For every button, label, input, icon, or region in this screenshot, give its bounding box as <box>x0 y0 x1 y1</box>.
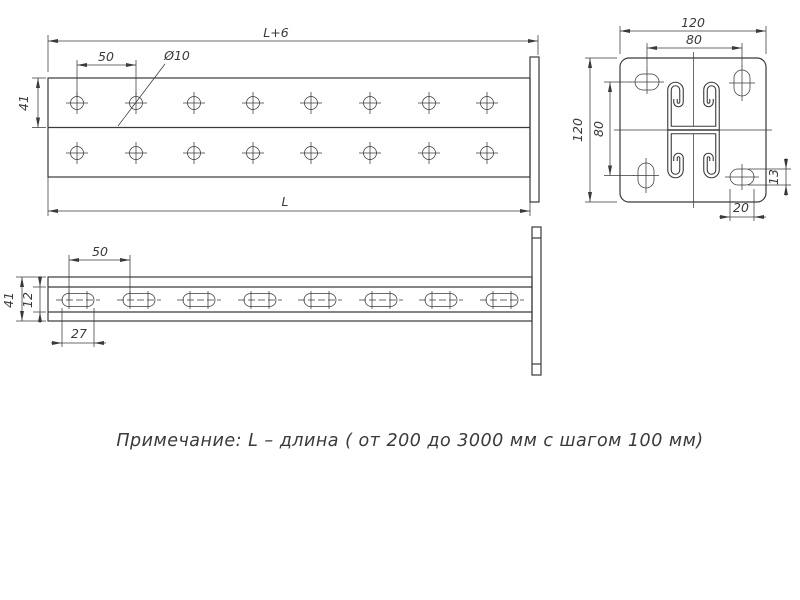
dim-hole-pitch: 50 <box>77 49 136 97</box>
plan-rail-body <box>48 78 530 177</box>
hole-row-bottom <box>66 142 498 164</box>
technical-drawing: L+6 50 Ø10 41 <box>0 0 800 600</box>
dim-channel-width: 41 <box>16 78 46 128</box>
slot-top-right <box>729 65 755 101</box>
dim-bolt-spacing-vertical: 80 <box>591 82 634 176</box>
dim-slot-height: 12 <box>20 276 46 323</box>
side-rail-body <box>48 277 532 321</box>
dim-length: L <box>48 177 530 216</box>
slot-top-left <box>630 70 664 94</box>
dim-slot-height-label: 12 <box>20 292 35 308</box>
dim-channel-width-label: 41 <box>16 95 31 111</box>
dim-length-label: L <box>282 194 289 209</box>
side-slots <box>56 291 524 309</box>
dim-slot-length-label: 27 <box>71 326 87 341</box>
side-end-plate <box>532 227 541 375</box>
end-view: 120 80 120 80 <box>570 15 791 221</box>
dim-total-length-label: L+6 <box>263 25 288 40</box>
dim-side-height-label: 41 <box>1 292 16 308</box>
drawing-canvas: L+6 50 Ø10 41 <box>0 0 800 600</box>
dim-slot-pitch: 50 <box>69 244 130 300</box>
dim-corner-slot-height-label: 13 <box>766 169 781 185</box>
dim-bolt-spacing-horizontal: 80 <box>647 32 742 71</box>
dim-slot-pitch-label: 50 <box>92 244 108 259</box>
plan-end-plate <box>530 57 539 202</box>
drawing-note: Примечание: L – длина ( от 200 до 3000 м… <box>116 431 703 451</box>
dim-hole-diameter-label: Ø10 <box>163 48 190 63</box>
side-view: 50 41 12 27 <box>1 227 541 375</box>
dim-plate-width-label: 120 <box>681 15 705 30</box>
hole-row-top <box>66 92 498 114</box>
dim-bolt-spacing-horizontal-label: 80 <box>686 32 702 47</box>
plan-view: L+6 50 Ø10 41 <box>16 25 539 216</box>
dim-plate-height-label: 120 <box>570 118 585 142</box>
slot-bottom-right <box>725 164 759 190</box>
slot-bottom-left <box>633 158 659 193</box>
dim-corner-slot-width-label: 20 <box>733 200 749 215</box>
dim-hole-pitch-label: 50 <box>98 49 114 64</box>
dim-hole-diameter: Ø10 <box>118 48 190 126</box>
dim-bolt-spacing-vertical-label: 80 <box>591 121 606 137</box>
dim-slot-length: 27 <box>51 308 106 347</box>
dim-corner-slot-width: 20 <box>719 189 766 221</box>
